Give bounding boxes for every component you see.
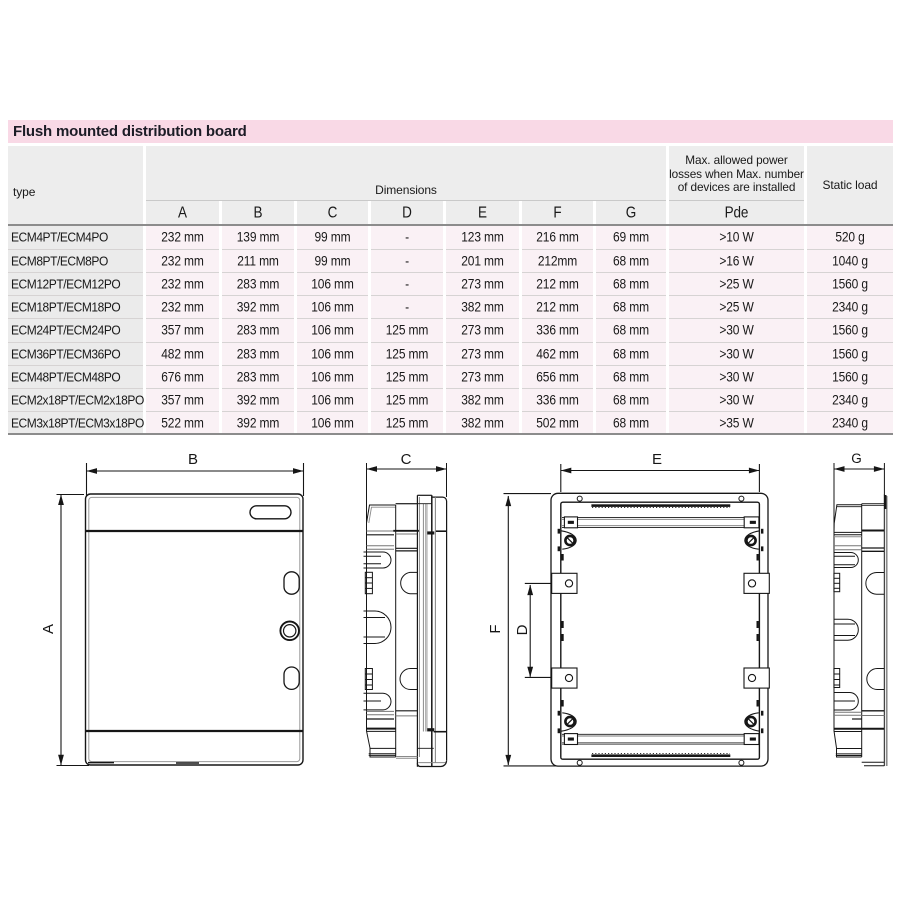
svg-text:F: F [487, 624, 504, 633]
svg-text:A: A [40, 624, 57, 634]
svg-text:B: B [188, 451, 198, 468]
svg-text:G: G [851, 451, 862, 466]
svg-text:C: C [401, 451, 412, 468]
svg-text:E: E [652, 451, 662, 468]
svg-text:D: D [514, 624, 531, 635]
